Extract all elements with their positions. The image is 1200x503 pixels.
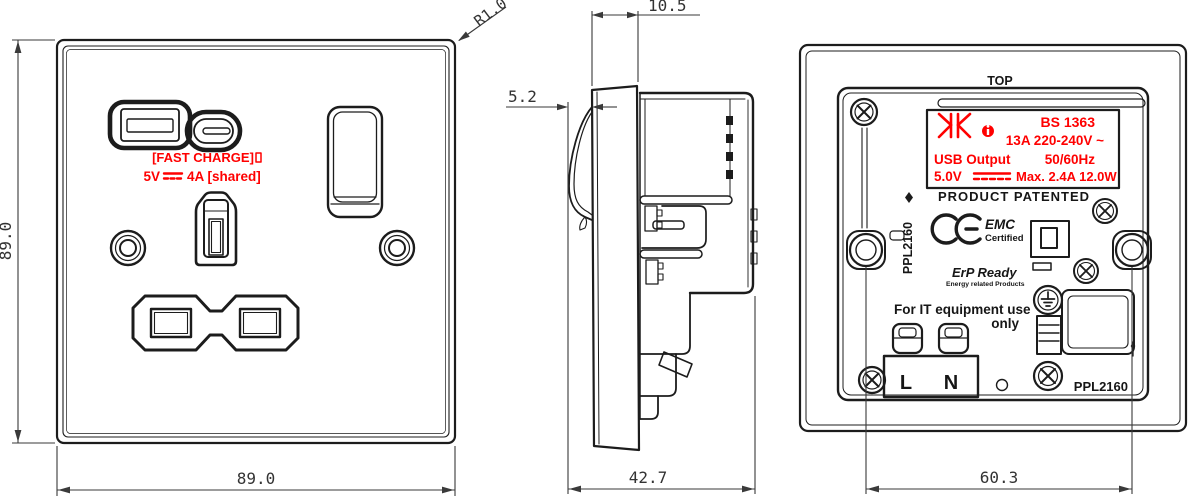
it-equipment-line1: For IT equipment use <box>894 302 1031 317</box>
dim-fixing-centres: 60.3 <box>980 468 1019 487</box>
side-backbox-profile <box>640 93 757 419</box>
label-standard: BS 1363 <box>1041 114 1096 130</box>
patented-label: PRODUCT PATENTED <box>938 189 1090 204</box>
line-neutral-apertures <box>133 296 298 350</box>
usb-c-port-icon <box>187 112 240 150</box>
fast-charge-marking: [FAST CHARGE] 5V 4A [shared] <box>143 150 261 184</box>
front-dimensions: 89.0 89.0 R1.0 <box>0 0 510 496</box>
usb-rating-amps: 4A [shared] <box>187 169 261 184</box>
battery-nub-icon <box>256 153 261 162</box>
dim-faceplate-depth: 10.5 <box>648 0 687 15</box>
side-view <box>569 86 757 450</box>
label-frequency: 50/60Hz <box>1045 152 1096 167</box>
model-code: PPL2160 <box>1074 379 1128 394</box>
dim-height: 89.0 <box>0 222 15 261</box>
cable-clamp-housing <box>1062 290 1134 354</box>
terminal-screw-neutral <box>939 324 968 353</box>
erp-ready-label: ErP Ready <box>952 265 1017 280</box>
dim-switch-protrusion: 5.2 <box>508 87 537 106</box>
rating-label: BS 1363 13A 220-240V ~ USB Output 50/60H… <box>927 110 1119 188</box>
emc-label: EMC <box>985 217 1015 232</box>
dim-corner-radius: R1.0 <box>471 0 511 30</box>
usb-ports <box>110 102 240 150</box>
terminal-block: L N <box>884 356 978 397</box>
dc-symbol-icon <box>164 174 182 179</box>
back-view: TOP <box>800 45 1186 431</box>
drain-hole <box>997 380 1008 391</box>
front-screw-left <box>111 231 145 265</box>
backbox-screw-top-left <box>851 99 877 125</box>
backbox-screw-top-right <box>1093 199 1117 223</box>
label-rating: 13A 220-240V ~ <box>1006 133 1104 148</box>
fuse-carrier <box>1031 221 1069 270</box>
earth-symbol-icon <box>1042 292 1055 306</box>
front-view: [FAST CHARGE] 5V 4A [shared] <box>57 40 455 443</box>
socket-engineering-drawing: [FAST CHARGE] 5V 4A [shared] <box>0 0 1200 503</box>
terminal-screw-live <box>893 324 922 353</box>
terminal-label-neutral: N <box>944 372 958 394</box>
mounting-hole-left <box>847 231 885 269</box>
usb-rating-volts: 5V <box>143 169 160 184</box>
model-code-vertical: PPL2160 <box>901 222 915 274</box>
terminal-label-live: L <box>900 372 912 394</box>
erp-sub-label: Energy related Products <box>946 281 1025 288</box>
dc-symbol-icon <box>974 174 1010 180</box>
label-usb-max: Max. 2.4A 12.0W <box>1016 169 1117 184</box>
label-usb-output: USB Output <box>934 152 1011 167</box>
label-usb-voltage: 5.0V <box>934 169 962 184</box>
backbox-screw-bottom-left <box>859 367 885 393</box>
fast-charge-label: [FAST CHARGE] <box>152 150 254 165</box>
front-screw-right <box>380 231 414 265</box>
ce-mark-icon <box>932 215 980 243</box>
brand-logo-icon <box>939 114 970 137</box>
side-switch-profile <box>569 107 592 230</box>
label-holder-rib <box>938 99 1145 107</box>
orientation-mark <box>905 192 913 203</box>
emc-certified-label: Certified <box>985 233 1024 244</box>
info-mark-icon <box>982 125 994 137</box>
side-dimensions: 10.5 5.2 42.7 <box>506 0 755 494</box>
earth-pin-aperture <box>196 193 236 266</box>
it-equipment-line2: only <box>991 316 1019 331</box>
earth-terminal <box>1034 286 1062 390</box>
mounting-hole-right <box>1113 231 1151 269</box>
dim-width: 89.0 <box>237 469 276 488</box>
top-orientation-label: TOP <box>987 74 1012 88</box>
backbox-screw-mid-right <box>1074 259 1098 283</box>
dim-total-depth: 42.7 <box>629 468 668 487</box>
technical-drawing-canvas: [FAST CHARGE] 5V 4A [shared] <box>0 0 1200 503</box>
rocker-switch <box>328 107 382 217</box>
